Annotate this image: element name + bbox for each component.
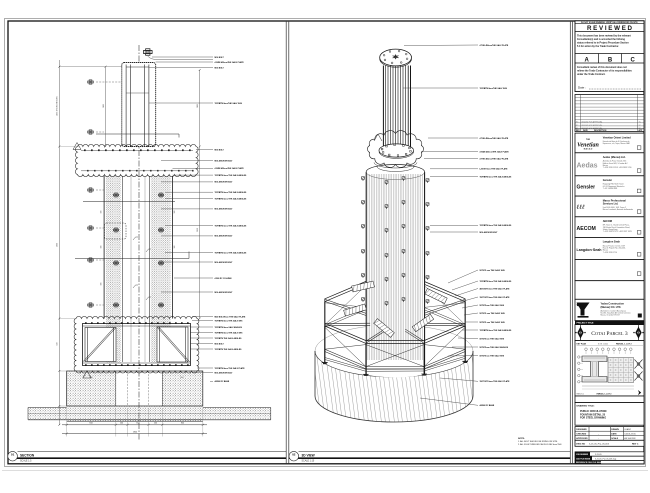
svg-text:REFERENCE DWG FILE NAME: REFERENCE DWG FILE NAME [576,461,603,464]
svg-text:DRAWING TITLE:: DRAWING TITLE: [577,404,595,407]
svg-text:4 THK 450mmTHK GALV PLATE: 4 THK 450mmTHK GALV PLATE [480,44,509,47]
svg-text:This document has been reviwed: This document has been reviwed by the re… [577,34,631,37]
svg-text:TOP/BTM 6mm THK GALV ANGLES: TOP/BTM 6mm THK GALV ANGLES [480,175,513,178]
svg-text:DESIGNED: DESIGNED [576,429,587,431]
svg-text:AS SHOWN: AS SHOWN [624,437,635,440]
svg-text:relieve the Trade Contractor o: relieve the Trade Contractor of its resp… [577,69,633,72]
svg-text:500: 500 [174,246,176,249]
svg-text:C: C [631,58,636,64]
svg-text:T +853 2833 1113 F +853 2833: T +853 2833 1113 F +853 2833 1700 [603,167,632,169]
svg-text:Macau Landmark, Avenida da Ami: Macau Landmark, Avenida da Amizade [603,208,633,211]
svg-text:M16 BOLT: M16 BOLT [215,149,225,151]
svg-text:APPROVED: APPROVED [576,437,588,440]
svg-text:50*50*5 mm THK GALV SHS: 50*50*5 mm THK GALV SHS [480,269,506,272]
svg-text:02: 02 [292,452,296,456]
svg-text:864: 864 [181,377,184,379]
svg-text:T +852 2828 5757 F +852 2827: T +852 2828 5757 F +852 2827 1823 [603,231,632,233]
svg-text:AECOM: AECOM [603,220,612,223]
svg-text:3-15-05_PQ_05-003: 3-15-05_PQ_05-003 [589,443,610,445]
svg-text:4 THK 450mmTHK GALV PLATE: 4 THK 450mmTHK GALV PLATE [480,137,509,140]
svg-text:50*50*5mm THK GALV SHS: 50*50*5mm THK GALV SHS [480,337,505,340]
svg-text:SECTION: SECTION [20,453,35,457]
svg-text:TOP/BTM 8mm GALV ANGLES: TOP/BTM 8mm GALV ANGLES [215,326,243,329]
svg-text:DWG NO: DWG NO [576,443,585,445]
svg-text:844: 844 [181,423,184,425]
svg-text:R E V I E W E D: R E V I E W E D [587,25,633,32]
svg-text:1. ALL BOLT SHOULD BE FIXING O: 1. ALL BOLT SHOULD BE FIXING ON SITE. [518,440,558,443]
svg-text:3-15-05_PQ_05-003.dwg: 3-15-05_PQ_05-003.dwg [595,459,616,461]
svg-text:844: 844 [89,423,92,425]
svg-text:NOTE:: NOTE: [518,438,525,440]
svg-text:5.4 for action by the Trade Co: 5.4 for action by the Trade Contractor. [577,45,619,48]
svg-text:4 THK 450mmTHK GALV PLATE: 4 THK 450mmTHK GALV PLATE [480,157,509,160]
svg-text:TOP/BTM 8mmTHK GALV SHS: TOP/BTM 8mmTHK GALV SHS [480,87,508,90]
svg-text:4 SIDE 450mmTHK GALV PLATE: 4 SIDE 450mmTHK GALV PLATE [480,150,510,153]
svg-text:status referred to in Projec: status referred to in Project Procedure … [577,41,629,44]
svg-text:M A C A O: M A C A O [584,148,593,151]
svg-text:Langdon·Seah: Langdon·Seah [577,248,602,252]
svg-text:TOP/BTM 8mm THK GALV PLATE: TOP/BTM 8mm THK GALV PLATE [215,367,246,370]
svg-text:50*50*5 mm THK GALV SHS: 50*50*5 mm THK GALV SHS [480,321,506,324]
svg-text:TOP/BTM 6mm THK GALV ANGLES: TOP/BTM 6mm THK GALV ANGLES [215,197,248,200]
svg-text:864: 864 [90,377,93,379]
svg-text:TOP/BTM 8mm THK GALV SHS: TOP/BTM 8mm THK GALV SHS [215,319,244,322]
svg-text:ISSUED FOR APPROVAL: ISSUED FOR APPROVAL [582,121,603,124]
svg-text:50*50*5mm THK GALV SHS: 50*50*5mm THK GALV SHS [480,354,505,357]
svg-text:CHECKED: CHECKED [576,434,586,436]
svg-text:M16 ANCHOR BOLT: M16 ANCHOR BOLT [215,181,234,184]
svg-text:M20 BOLT/8mm THK GALV PLATE: M20 BOLT/8mm THK GALV PLATE [215,315,247,318]
svg-text:652: 652 [136,423,139,425]
svg-text:2844: 2844 [133,431,137,433]
svg-text:(Macau) CO. LTD.: (Macau) CO. LTD. [601,306,622,309]
svg-text:50*50*5 mm THK GALV SHS: 50*50*5 mm THK GALV SHS [480,312,506,315]
svg-text:M16 ANCHOR BOLT: M16 ANCHOR BOLT [480,231,499,234]
svg-text:Gensler: Gensler [603,179,612,182]
svg-text:1495: 1495 [103,104,105,108]
svg-text:50*50*5mm THK GALV SHS: 50*50*5mm THK GALV SHS [480,304,505,307]
svg-text:M16 ANCHOR BOLT: M16 ANCHOR BOLT [215,291,234,294]
svg-text:P3: P3 [576,122,578,124]
svg-text:A2500 RC BASE: A2500 RC BASE [480,404,495,407]
svg-text:N.T.S 1:1000: N.T.S 1:1000 [598,343,608,345]
svg-text:TOP/BTM THK GALV ANGLES: TOP/BTM THK GALV ANGLES [215,337,243,340]
svg-text:AECOM: AECOM [577,226,596,232]
svg-text:2800: 2800 [57,243,59,247]
svg-text:M16 ANCHOR BOLT: M16 ANCHOR BOLT [215,235,234,238]
svg-text:M16 ANCHOR BOLT: M16 ANCHOR BOLT [215,208,234,211]
svg-text:DRAWN: DRAWN [611,428,619,431]
svg-text:2. ALL FILLET WELDED SHOULD BE: 2. ALL FILLET WELDED SHOULD BE 3mm THK. [518,443,562,446]
svg-text:LEANZ: LEANZ [624,428,631,431]
svg-text:450*250*10mm THK GALV PLATE: 450*250*10mm THK GALV PLATE [480,287,511,290]
svg-text:4 SIDE 450mmTHK GALV PLATE: 4 SIDE 450mmTHK GALV PLATE [215,167,245,170]
svg-text:under the Trade Contract.: under the Trade Contract. [577,73,606,76]
svg-text:Esperanca, s/n, Taipa, Macau S: Esperanca, s/n, Taipa, Macau SAR [603,142,631,145]
svg-text:14/JUL/2015: 14/JUL/2015 [624,434,636,436]
svg-text:Services Ltd.: Services Ltd. [603,202,619,205]
svg-text:SCALE 1:10: SCALE 1:10 [302,460,315,463]
svg-text:M16 ANCHOR BOLT: M16 ANCHOR BOLT [215,261,234,264]
svg-text:ℓℓℓ: ℓℓℓ [576,204,586,211]
svg-text:ISSUED FOR APPROVAL: ISSUED FOR APPROVAL [582,124,603,127]
svg-text:Macau, 16 andar E,F,G,H: Macau, 16 andar E,F,G,H [601,314,621,317]
svg-text:THE: THE [586,139,591,141]
svg-text:150*150*10mm THK GALV PLATE: 150*150*10mm THK GALV PLATE [480,296,511,299]
svg-text:01: 01 [11,452,15,456]
svg-text:REV C: REV C [632,443,639,445]
svg-text:TOP/BTM 6mm THK GALV ANGLES: TOP/BTM 6mm THK GALV ANGLES [215,191,248,194]
svg-text:M16 ANCHOR BOLT: M16 ANCHOR BOLT [215,371,234,374]
svg-text:4 500 RC COLUMN: 4 500 RC COLUMN [215,277,232,280]
svg-text:SCALE: SCALE [611,437,618,440]
svg-text:TOP/BTM 6mm THK GALV ANGLES: TOP/BTM 6mm THK GALV ANGLES [215,174,248,177]
svg-text:500: 500 [57,342,59,345]
svg-text:T +81 3 6406 8001: T +81 3 6406 8001 [603,188,618,190]
svg-text:2950: 2950 [197,228,199,232]
svg-text:Aedas (Macau) Ltd.: Aedas (Macau) Ltd. [603,156,626,159]
svg-text:3D VIEW: 3D VIEW [302,453,315,457]
svg-text:TOP/BTM THK GALV ANGLES: TOP/BTM THK GALV ANGLES [215,348,243,351]
svg-text:A: A [585,58,590,64]
svg-text:500: 500 [101,246,103,249]
svg-text:4 SIDE 450mmTHK GALV PLATE: 4 SIDE 450mmTHK GALV PLATE [215,61,245,64]
svg-text:M16 BOLT: M16 BOLT [215,67,225,69]
svg-text:T +853 2833 1710: T +853 2833 1710 [603,252,617,254]
svg-text:Gensler: Gensler [577,185,596,191]
svg-text:KEY PLAN: KEY PLAN [577,342,587,345]
svg-text:1495 (FIXING HEIGHT): 1495 (FIXING HEIGHT) [57,96,59,116]
svg-text:CAD FILE NAME: CAD FILE NAME [576,458,591,461]
svg-text:500: 500 [101,211,103,214]
svg-text:M16 BOLT: M16 BOLT [215,343,225,345]
svg-text:TOP/BTM 6mm THK GALV ANGLES: TOP/BTM 6mm THK GALV ANGLES [215,251,248,254]
svg-text:500: 500 [101,283,103,286]
svg-text:Date :: Date : [578,86,586,90]
svg-text:TOP/BTM 8mm THK GALV SHS: TOP/BTM 8mm THK GALV SHS [215,331,244,334]
svg-text:3-15-05: 3-15-05 [595,454,602,456]
svg-text:DATE: DATE [583,129,589,132]
svg-text:Consultants(s) and is accorded: Consultants(s) and is accorded the follo… [577,38,625,41]
svg-text:PARCEL 1, LOT 2: PARCEL 1, LOT 2 [597,392,612,395]
svg-text:200: 200 [154,423,157,425]
svg-text:200: 200 [120,423,123,425]
svg-text:Langdon Seah: Langdon Seah [603,241,621,244]
svg-text:L25*25*3mm THK GALV PLATE: L25*25*3mm THK GALV PLATE [480,168,509,171]
svg-text:150*150*10mm THK GALV PLATE: 150*150*10mm THK GALV PLATE [480,380,511,383]
svg-text:M16 ANCHOR BOLT: M16 ANCHOR BOLT [215,160,234,163]
svg-text:FOR STEEL DRAWING: FOR STEEL DRAWING [580,417,606,420]
svg-text:DESCRIPTION: DESCRIPTION [594,130,607,132]
svg-text:Venetian Orient Limited: Venetian Orient Limited [603,136,631,139]
svg-text:Aedas: Aedas [577,163,598,170]
svg-text:50*50*5mm THK GALV ANGLES: 50*50*5mm THK GALV ANGLES [480,346,509,349]
svg-text:PARCEL 1, LOT 2: PARCEL 1, LOT 2 [616,342,632,345]
svg-text:TOP/BTM 6mm THK GALV ANGLES: TOP/BTM 6mm THK GALV ANGLES [215,224,248,227]
svg-text:TOP/BTM 6mm THK GALV ANGLES: TOP/BTM 6mm THK GALV ANGLES [480,329,513,332]
svg-text:500: 500 [174,211,176,214]
svg-text:Consultant review of this docu: Consultant review of this document does … [577,66,627,69]
svg-text:P2: P2 [576,125,578,127]
svg-text:1495: 1495 [197,104,199,108]
svg-text:B: B [608,58,613,64]
svg-text:DATE: DATE [611,433,617,436]
svg-text:A2500 RC BASE: A2500 RC BASE [215,380,230,383]
svg-text:TOP/BTM 8mmTHK GALV SHS: TOP/BTM 8mmTHK GALV SHS [215,102,243,105]
svg-text:SCALE 1:5: SCALE 1:5 [20,460,32,463]
svg-text:TOP/BTM 6mm THK GALV ANGLES: TOP/BTM 6mm THK GALV ANGLES [480,224,513,227]
svg-text:TOP/BTM 6mm THK GALV ANGLES: TOP/BTM 6mm THK GALV ANGLES [480,280,513,283]
svg-text:M16 BOLT: M16 BOLT [215,57,225,59]
svg-text:JOB NUMBER: JOB NUMBER [576,454,589,456]
